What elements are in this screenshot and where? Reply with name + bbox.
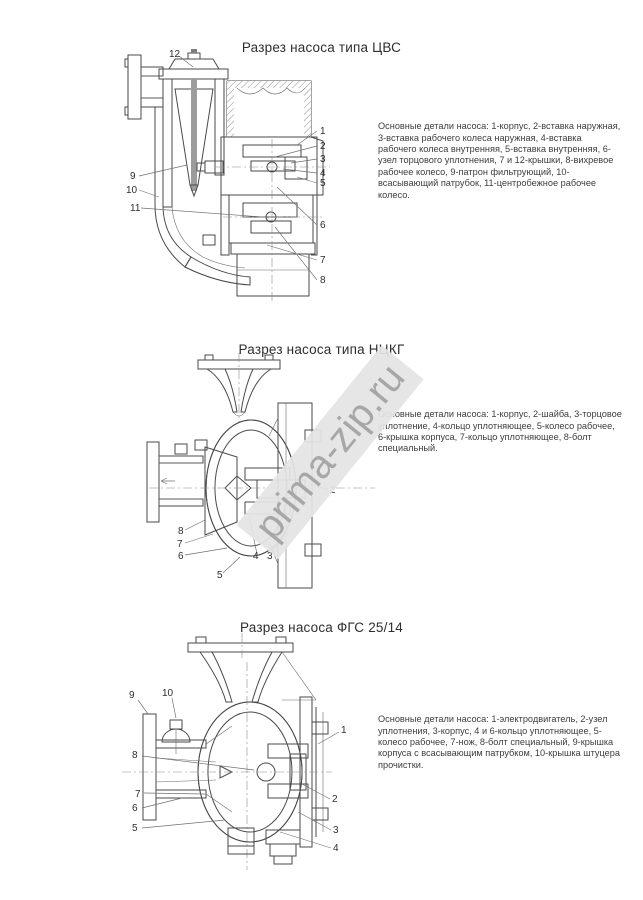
callout-label: 1 [341, 725, 347, 736]
section-description-fgs: Основные детали насоса: 1-электродвигате… [378, 714, 622, 771]
callout-label: 6 [132, 803, 138, 814]
callout-label: 8 [178, 526, 184, 537]
callout-label: 11 [130, 203, 141, 214]
nckg-discharge-flange-and-neck [198, 353, 280, 422]
callout-label: 12 [169, 49, 181, 60]
callout-label: 8 [132, 750, 138, 761]
callout-label: 5 [132, 823, 138, 834]
callout-label: 4 [253, 551, 259, 562]
fgs-cleanout-fitting [162, 720, 190, 754]
callout-label: 10 [162, 688, 174, 699]
diagram-fgs-pump-cross-section: 9 10 8 7 6 5 1 2 3 4 [120, 632, 365, 877]
scanned-document-page: Разрез насоса типа ЦВС [0, 0, 643, 900]
callout-label: 2 [320, 141, 326, 152]
callout-label: 5 [320, 178, 326, 189]
callout-label: 7 [320, 255, 326, 266]
callout-label: 1 [320, 126, 326, 137]
callout-label: 6 [178, 551, 184, 562]
callout-label: 2 [332, 794, 338, 805]
callout-label: 7 [177, 539, 183, 550]
section-description-cvs: Основные детали насоса: 1-корпус, 2-вста… [378, 121, 622, 201]
cvs-suction-flange [125, 55, 163, 119]
nckg-suction-pipe [147, 440, 207, 522]
cvs-elbow-channel [172, 195, 250, 285]
callout-label: 5 [217, 570, 223, 581]
fgs-base-and-drain-plugs [228, 828, 300, 864]
callout-label: 4 [333, 843, 339, 854]
callout-label: 9 [130, 171, 136, 182]
section-description-nckg: Основные детали насоса: 1-корпус, 2-шайб… [378, 409, 622, 455]
cvs-filter-cartridge [175, 79, 213, 196]
callout-label: 9 [129, 690, 135, 701]
callout-label: 8 [320, 275, 326, 286]
callout-label: 7 [135, 789, 141, 800]
fgs-discharge-flange-and-neck [188, 633, 316, 702]
callout-label: 10 [126, 185, 138, 196]
diagram-cvs-pump-cross-section: 12 1 2 3 4 5 6 7 8 9 10 11 [125, 45, 375, 310]
callout-label: 6 [320, 220, 326, 231]
callout-label: 3 [320, 154, 326, 165]
cvs-impellers-and-seal [197, 145, 307, 233]
callout-label: 3 [333, 825, 339, 836]
